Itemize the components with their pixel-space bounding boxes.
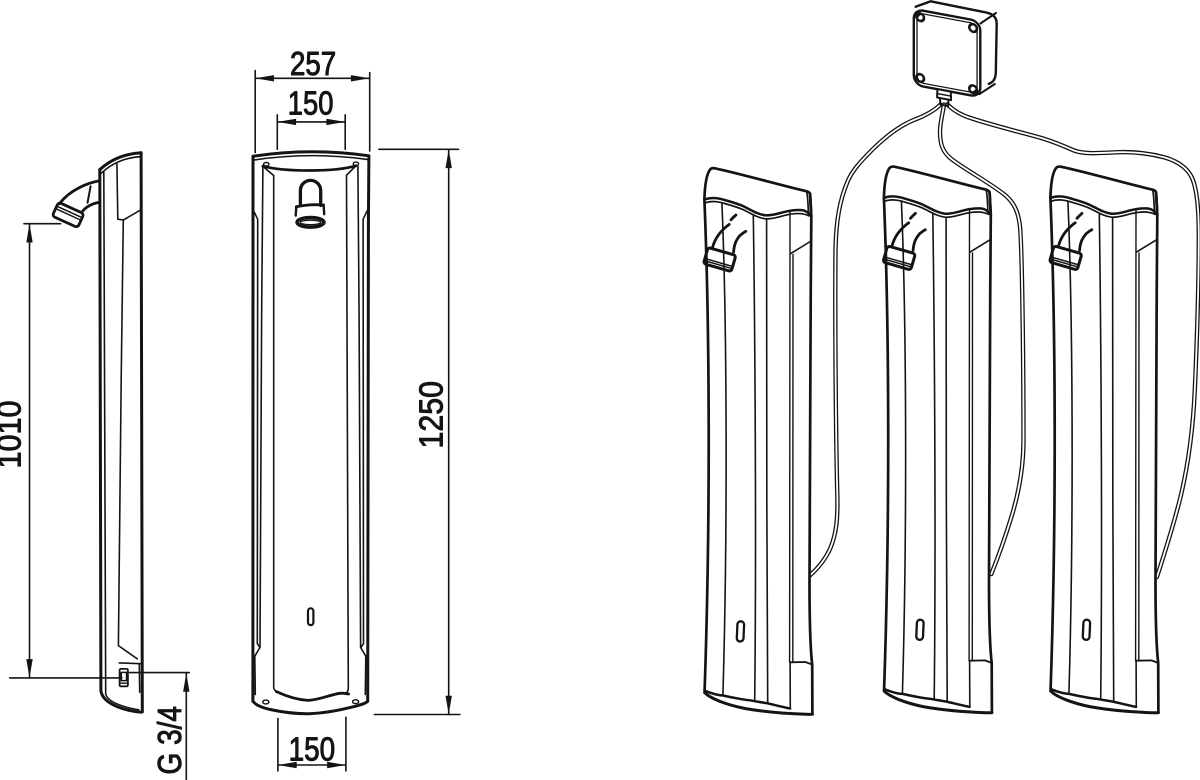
svg-text:G 3/4: G 3/4 xyxy=(151,706,188,775)
svg-text:150: 150 xyxy=(289,730,336,767)
svg-text:257: 257 xyxy=(290,45,336,82)
svg-text:1250: 1250 xyxy=(413,381,450,449)
svg-text:150: 150 xyxy=(288,84,334,121)
svg-text:1010: 1010 xyxy=(0,401,28,469)
